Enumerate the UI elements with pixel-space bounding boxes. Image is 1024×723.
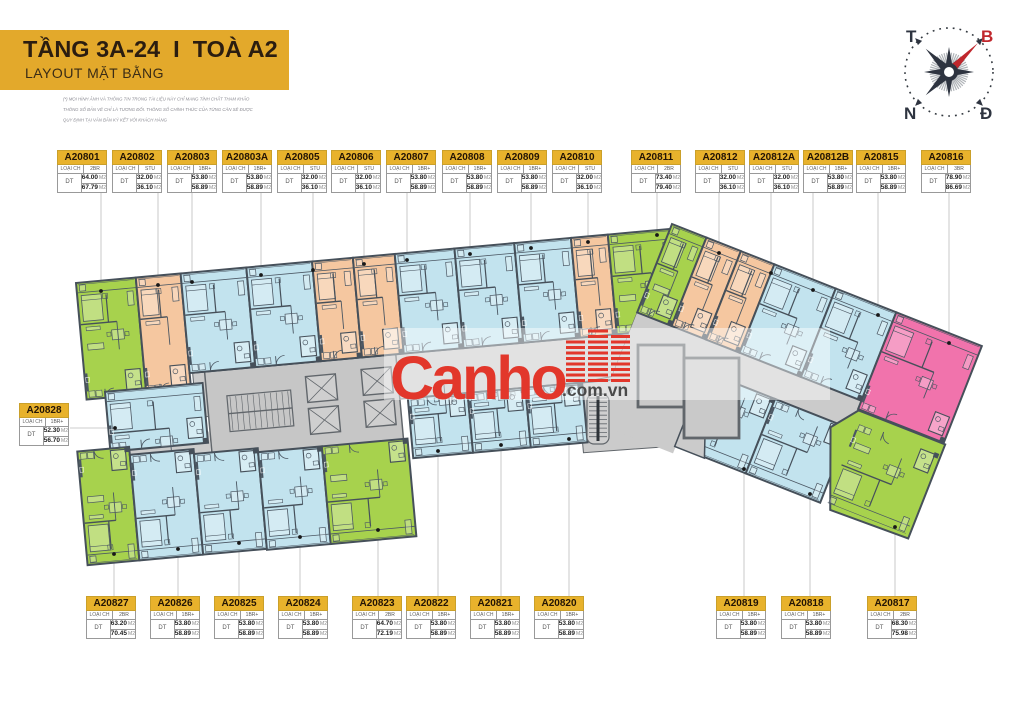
svg-text:Đ: Đ bbox=[980, 104, 992, 123]
svg-text:B: B bbox=[981, 27, 993, 46]
svg-text:Canho: Canho bbox=[390, 344, 566, 412]
svg-text:.com.vn: .com.vn bbox=[562, 380, 628, 400]
svg-text:N: N bbox=[904, 104, 916, 123]
svg-text:T: T bbox=[906, 27, 917, 46]
